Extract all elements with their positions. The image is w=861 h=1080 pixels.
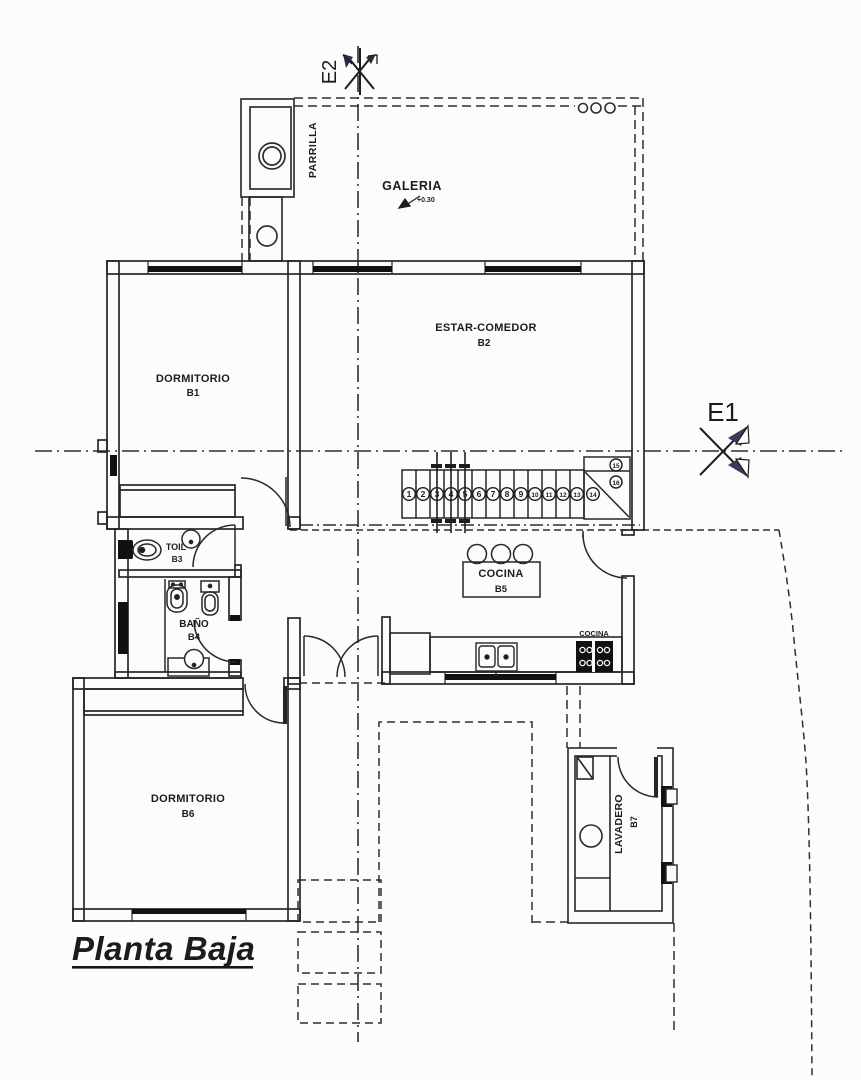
- svg-text:ESTAR-COMEDOR: ESTAR-COMEDOR: [435, 322, 536, 334]
- svg-text:B7: B7: [629, 816, 639, 828]
- svg-text:16: 16: [612, 480, 620, 487]
- svg-text:10: 10: [531, 492, 539, 499]
- svg-text:TOIL: TOIL: [166, 542, 187, 552]
- svg-text:15: 15: [612, 463, 620, 470]
- svg-text:+0.30: +0.30: [417, 197, 435, 204]
- svg-text:PARRILLA: PARRILLA: [307, 122, 319, 178]
- svg-text:GALERIA: GALERIA: [382, 179, 442, 193]
- svg-text:3: 3: [435, 489, 440, 499]
- svg-text:BAÑO: BAÑO: [179, 617, 209, 630]
- svg-text:5: 5: [463, 489, 468, 499]
- svg-text:DORMITORIO: DORMITORIO: [156, 373, 230, 385]
- svg-text:8: 8: [505, 489, 510, 499]
- svg-text:6: 6: [477, 489, 482, 499]
- svg-text:12: 12: [559, 492, 567, 499]
- svg-text:DORMITORIO: DORMITORIO: [151, 793, 225, 805]
- svg-text:B3: B3: [172, 554, 183, 564]
- svg-text:11: 11: [546, 492, 553, 499]
- svg-text:14: 14: [589, 492, 597, 499]
- svg-text:9: 9: [519, 489, 524, 499]
- svg-text:B5: B5: [495, 584, 508, 595]
- svg-text:B4: B4: [188, 632, 201, 643]
- svg-text:4: 4: [449, 489, 454, 499]
- svg-text:B6: B6: [182, 809, 195, 820]
- svg-text:E2: E2: [319, 60, 341, 84]
- svg-text:LAVADERO: LAVADERO: [613, 794, 625, 854]
- svg-text:1: 1: [407, 489, 412, 499]
- svg-text:7: 7: [491, 489, 496, 499]
- svg-text:B2: B2: [478, 338, 491, 349]
- svg-text:COCINA: COCINA: [478, 568, 523, 580]
- svg-text:13: 13: [573, 492, 581, 499]
- svg-text:2: 2: [421, 489, 426, 499]
- svg-text:B1: B1: [187, 388, 200, 399]
- svg-text:Planta Baja: Planta Baja: [72, 930, 255, 967]
- svg-text:COCINA: COCINA: [579, 629, 609, 638]
- svg-text:E1: E1: [707, 397, 739, 427]
